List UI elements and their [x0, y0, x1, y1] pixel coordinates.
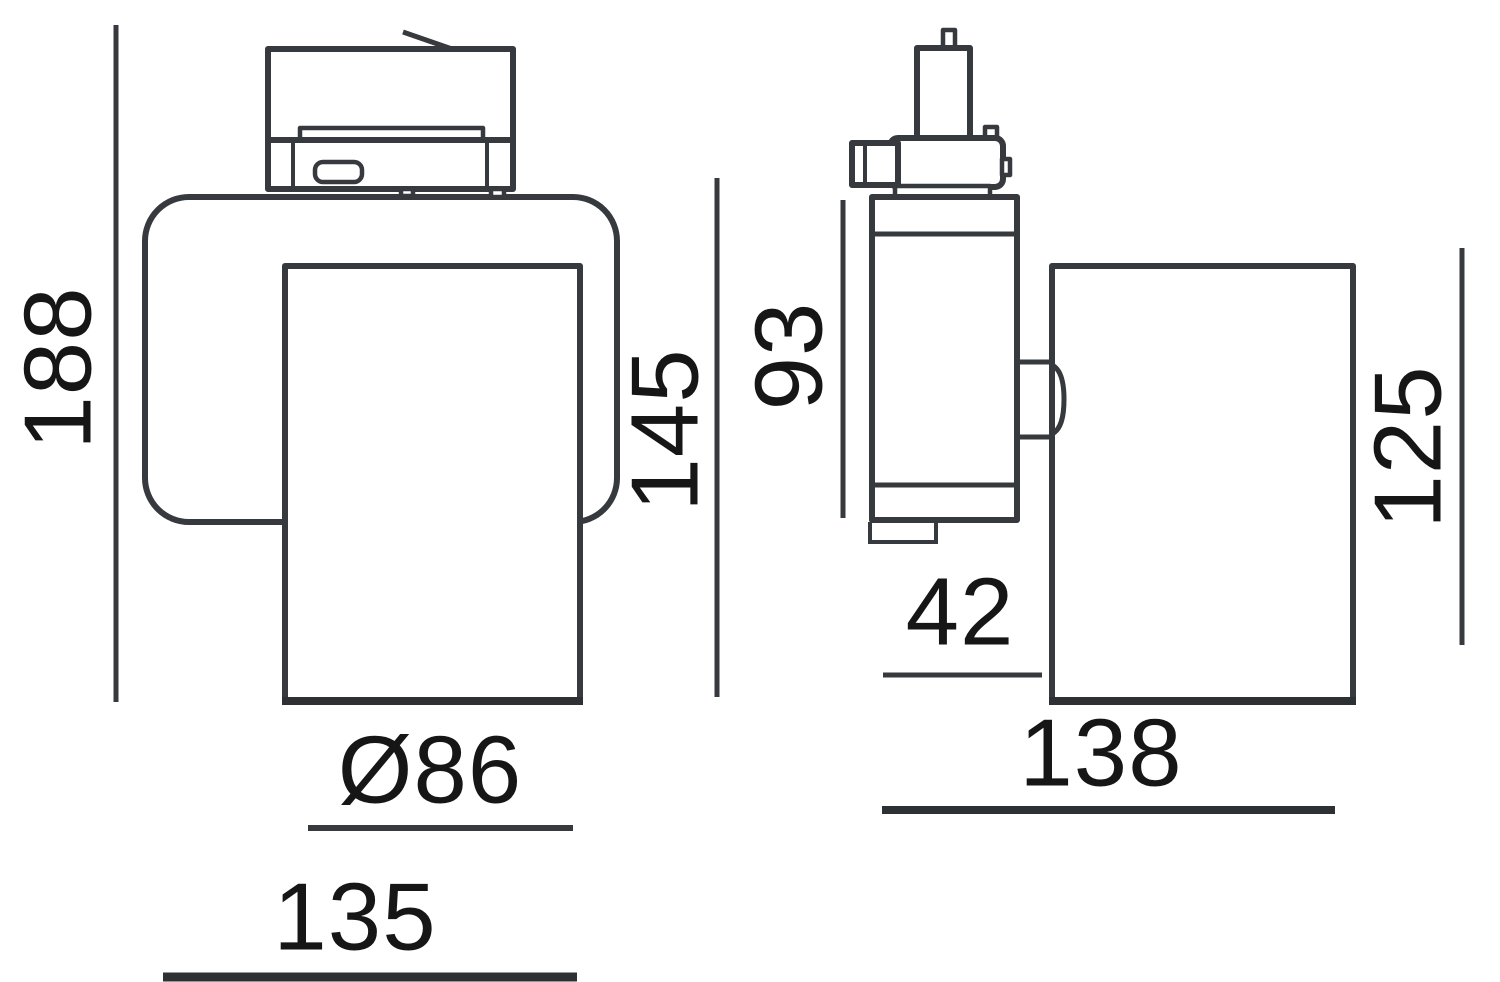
- dim-label-head-diameter: Ø86: [338, 717, 522, 824]
- dim-label-overall-height: 188: [5, 286, 112, 449]
- side-adapter-right-tick: [1002, 159, 1010, 175]
- front-adapter-slot: [315, 162, 362, 182]
- dim-label-body-height: 145: [612, 348, 719, 511]
- dim-label-head-length: 138: [1019, 700, 1182, 807]
- front-lamp-cylinder: [285, 266, 580, 702]
- dimension-drawing-page: 188 145 Ø86 135: [0, 0, 1500, 982]
- front-adapter-right-foot: [491, 189, 504, 197]
- front-adapter-base: [268, 140, 513, 189]
- side-adapter-latch-box: [852, 143, 898, 185]
- dim-label-overall-width: 135: [273, 864, 436, 971]
- dim-label-adapter-body-height: 93: [736, 302, 843, 411]
- front-adapter-center-tab: [401, 189, 413, 196]
- dim-label-head-height: 125: [1355, 365, 1462, 528]
- side-adapter-body: [890, 138, 1003, 187]
- dim-label-body-depth: 42: [906, 559, 1015, 666]
- side-gear-housing: [872, 197, 1017, 520]
- side-lamp-cylinder: [1052, 266, 1353, 700]
- side-adapter-post: [917, 48, 970, 139]
- track-light-dimension-drawing: 188 145 Ø86 135: [0, 0, 1500, 982]
